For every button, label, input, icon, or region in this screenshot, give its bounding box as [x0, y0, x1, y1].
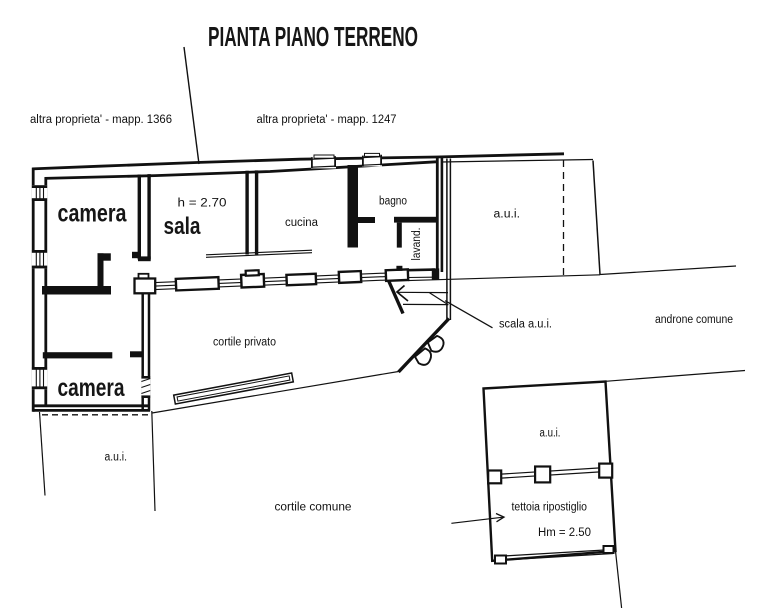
svg-text:sala: sala	[164, 213, 202, 240]
svg-text:camera: camera	[58, 374, 126, 402]
svg-text:lavand.: lavand.	[411, 228, 423, 261]
svg-text:h = 2.70: h = 2.70	[178, 198, 227, 210]
svg-text:androne comune: androne comune	[655, 314, 733, 326]
svg-text:tettoia ripostiglio: tettoia ripostiglio	[512, 502, 588, 514]
svg-text:a.u.i.: a.u.i.	[105, 452, 128, 464]
svg-text:Hm = 2.50: Hm = 2.50	[538, 527, 591, 539]
svg-text:camera: camera	[58, 200, 128, 228]
svg-text:altra proprieta' - mapp. 1247: altra proprieta' - mapp. 1247	[257, 114, 397, 126]
svg-text:cucina: cucina	[285, 217, 319, 229]
svg-text:bagno: bagno	[379, 196, 407, 208]
svg-text:a.u.i.: a.u.i.	[540, 428, 561, 440]
svg-text:cortile comune: cortile comune	[275, 502, 352, 514]
svg-text:a.u.i.: a.u.i.	[494, 209, 521, 221]
svg-text:cortile privato: cortile privato	[213, 337, 276, 349]
svg-text:scala a.u.i.: scala a.u.i.	[499, 319, 552, 331]
svg-text:altra proprieta' - mapp. 1366: altra proprieta' - mapp. 1366	[30, 114, 172, 126]
svg-text:PIANTA PIANO TERRENO: PIANTA PIANO TERRENO	[208, 21, 418, 52]
